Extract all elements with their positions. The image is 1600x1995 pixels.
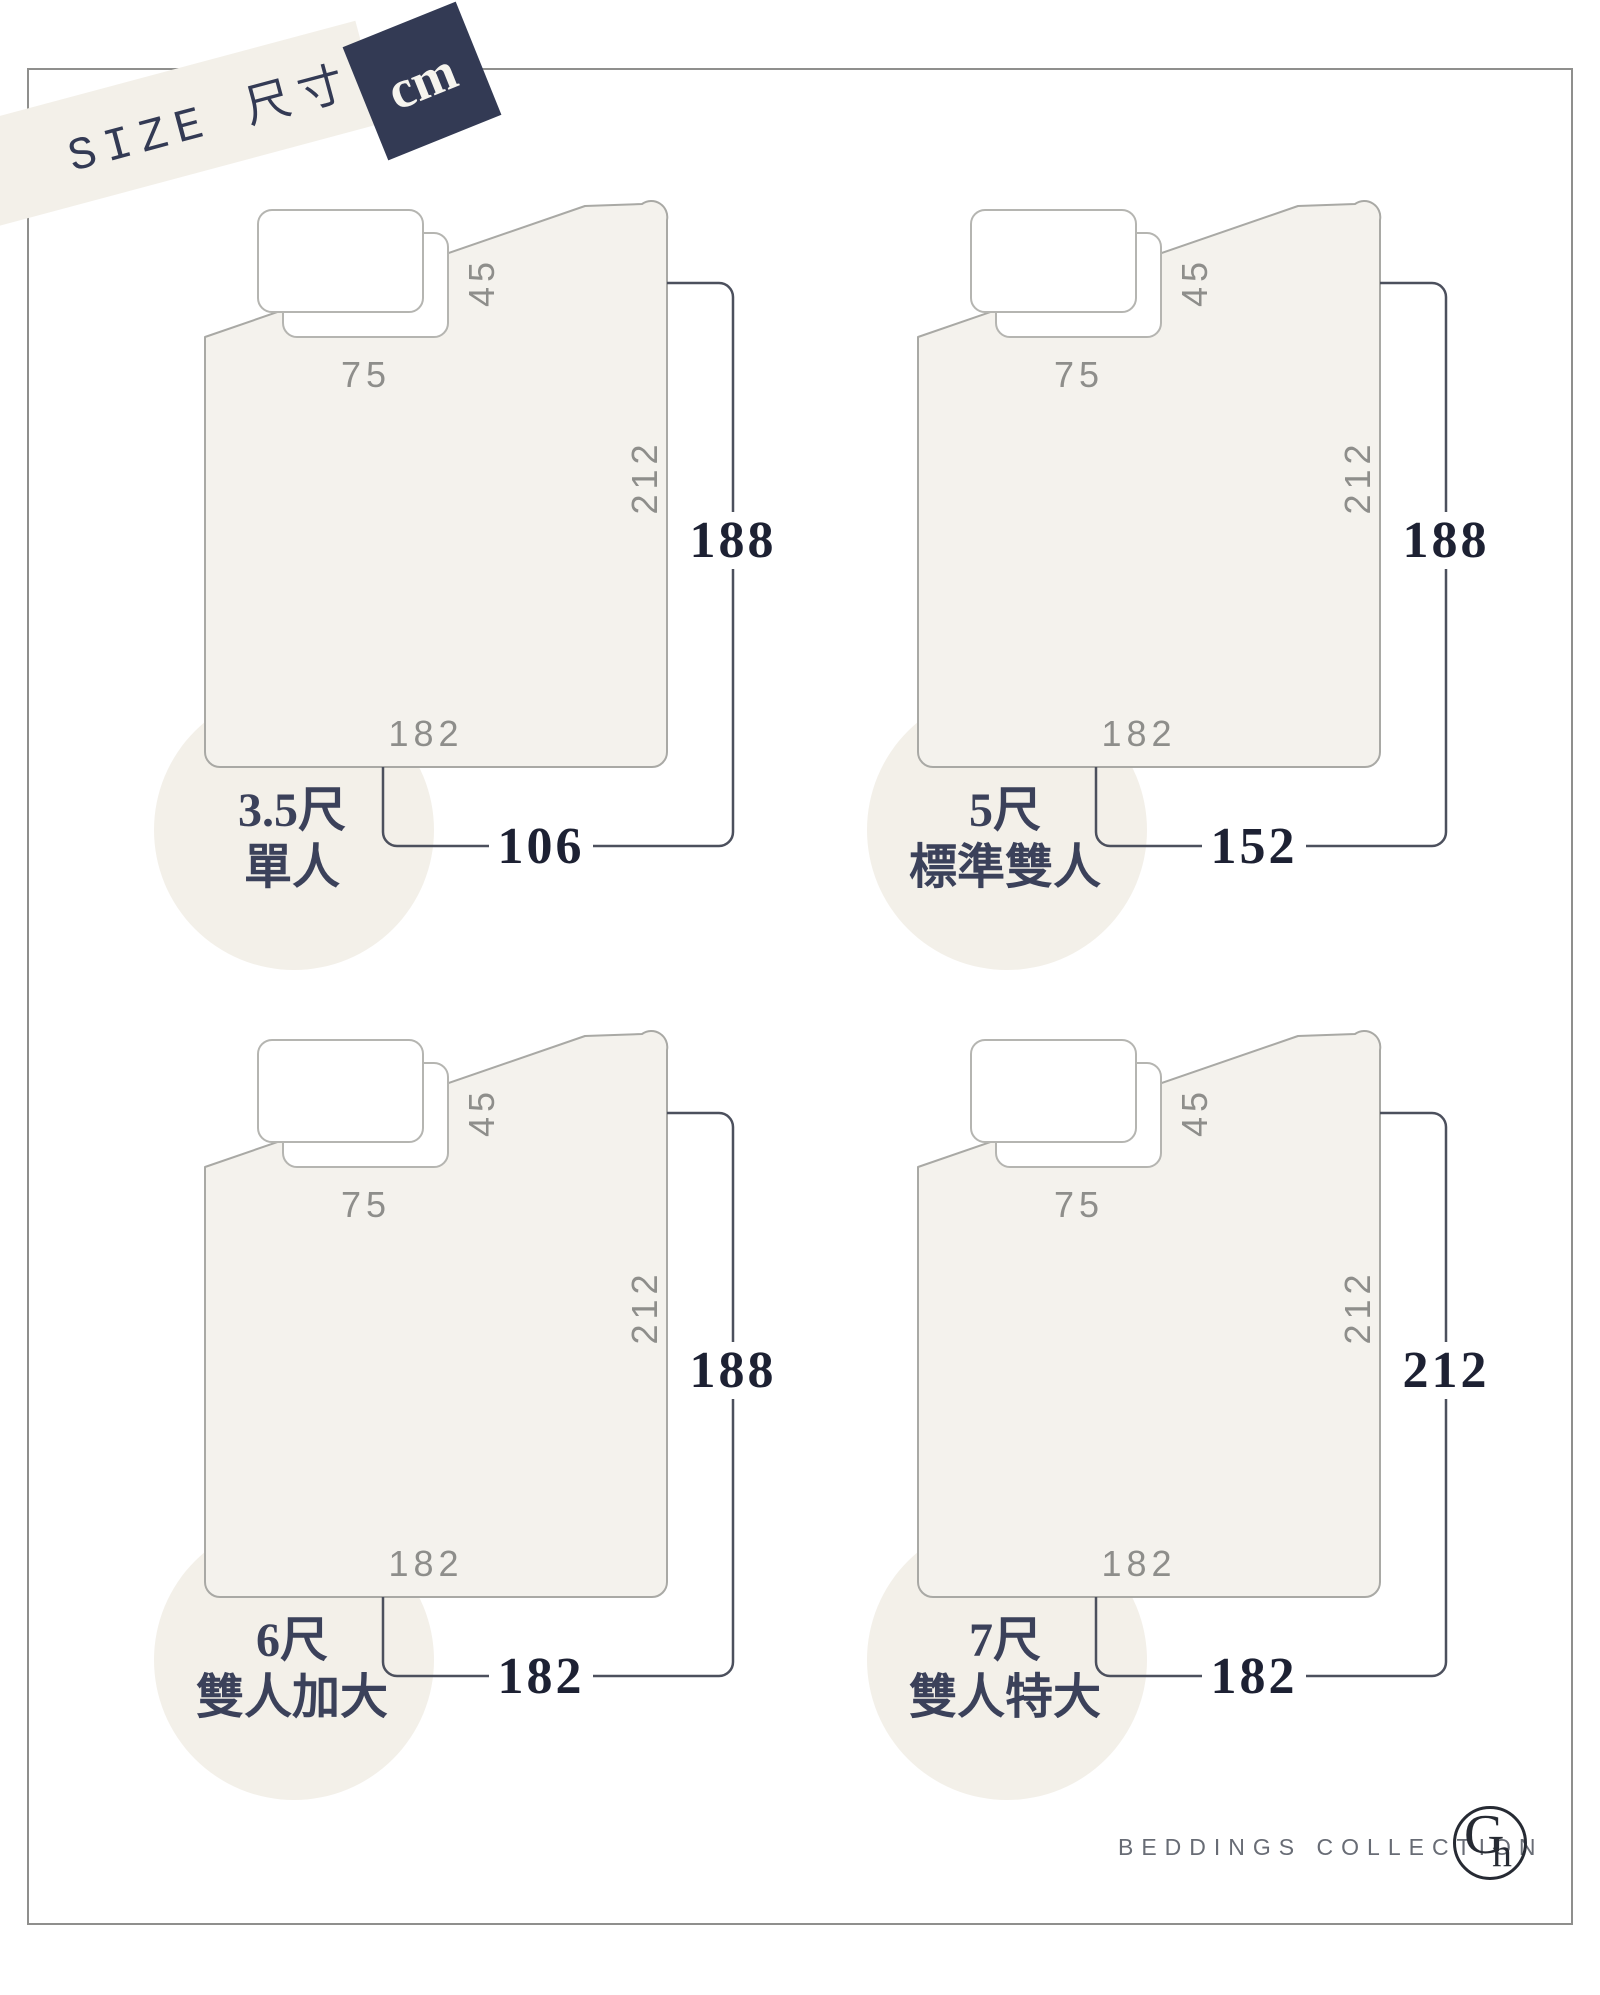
mattress-width-value: 182 (1211, 1648, 1298, 1705)
quilt-width-label: 182 (1101, 713, 1176, 754)
quilt-length-label: 212 (624, 1269, 665, 1344)
pillow-front (971, 1040, 1136, 1142)
bed-size-ft: 3.5尺 (238, 784, 346, 837)
bed-size-name: 雙人特大 (909, 1671, 1101, 1724)
bed-size-diagram: 75 45 212 182 188 106 3.5尺 單人 (145, 165, 825, 985)
pillow-width-label: 75 (341, 354, 391, 395)
unit-label: cm (378, 39, 465, 122)
bed-size-diagram: 75 45 212 182 188 152 5尺 標準雙人 (858, 165, 1538, 985)
mattress-width-value: 106 (498, 818, 585, 875)
pillow-width-label: 75 (1054, 1184, 1104, 1225)
pillow-offset-label: 45 (461, 1087, 502, 1137)
bed-size-name: 標準雙人 (909, 841, 1101, 894)
pillow-offset-label: 45 (1174, 1087, 1215, 1137)
pillow-front (971, 210, 1136, 312)
quilt-width-label: 182 (1101, 1543, 1176, 1584)
pillow-offset-label: 45 (461, 257, 502, 307)
quilt-length-label: 212 (1337, 439, 1378, 514)
mattress-length-value: 212 (1403, 1342, 1490, 1399)
bed-size-ft: 6尺 (256, 1614, 328, 1667)
diagram-6ft-queen: 75 45 212 182 188 182 6尺 雙人加大 (145, 995, 825, 1815)
pillow-width-label: 75 (1054, 354, 1104, 395)
pillow-front (258, 1040, 423, 1142)
logo-letter-n: n (1492, 1829, 1512, 1876)
bed-size-diagram: 75 45 212 182 212 182 7尺 雙人特大 (858, 995, 1538, 1815)
brand-logo: G n (1453, 1806, 1527, 1880)
quilt-width-label: 182 (388, 1543, 463, 1584)
diagram-5ft-double: 75 45 212 182 188 152 5尺 標準雙人 (858, 165, 1538, 985)
pillow-front (258, 210, 423, 312)
quilt-width-label: 182 (388, 713, 463, 754)
size-chart-poster: SIZE 尺寸 cm 75 45 212 182 188 106 3.5尺 單人… (0, 0, 1600, 1995)
diagram-7ft-king: 75 45 212 182 212 182 7尺 雙人特大 (858, 995, 1538, 1815)
mattress-width-value: 182 (498, 1648, 585, 1705)
mattress-width-value: 152 (1211, 818, 1298, 875)
mattress-length-value: 188 (690, 1342, 777, 1399)
bed-size-diagram: 75 45 212 182 188 182 6尺 雙人加大 (145, 995, 825, 1815)
bed-size-name: 雙人加大 (196, 1671, 388, 1724)
mattress-length-value: 188 (690, 512, 777, 569)
pillow-offset-label: 45 (1174, 257, 1215, 307)
bed-size-name: 單人 (244, 841, 340, 894)
quilt-length-label: 212 (1337, 1269, 1378, 1344)
diagram-3-5ft-single: 75 45 212 182 188 106 3.5尺 單人 (145, 165, 825, 985)
bed-size-ft: 5尺 (969, 784, 1041, 837)
mattress-length-value: 188 (1403, 512, 1490, 569)
quilt-length-label: 212 (624, 439, 665, 514)
pillow-width-label: 75 (341, 1184, 391, 1225)
bed-size-ft: 7尺 (969, 1614, 1041, 1667)
